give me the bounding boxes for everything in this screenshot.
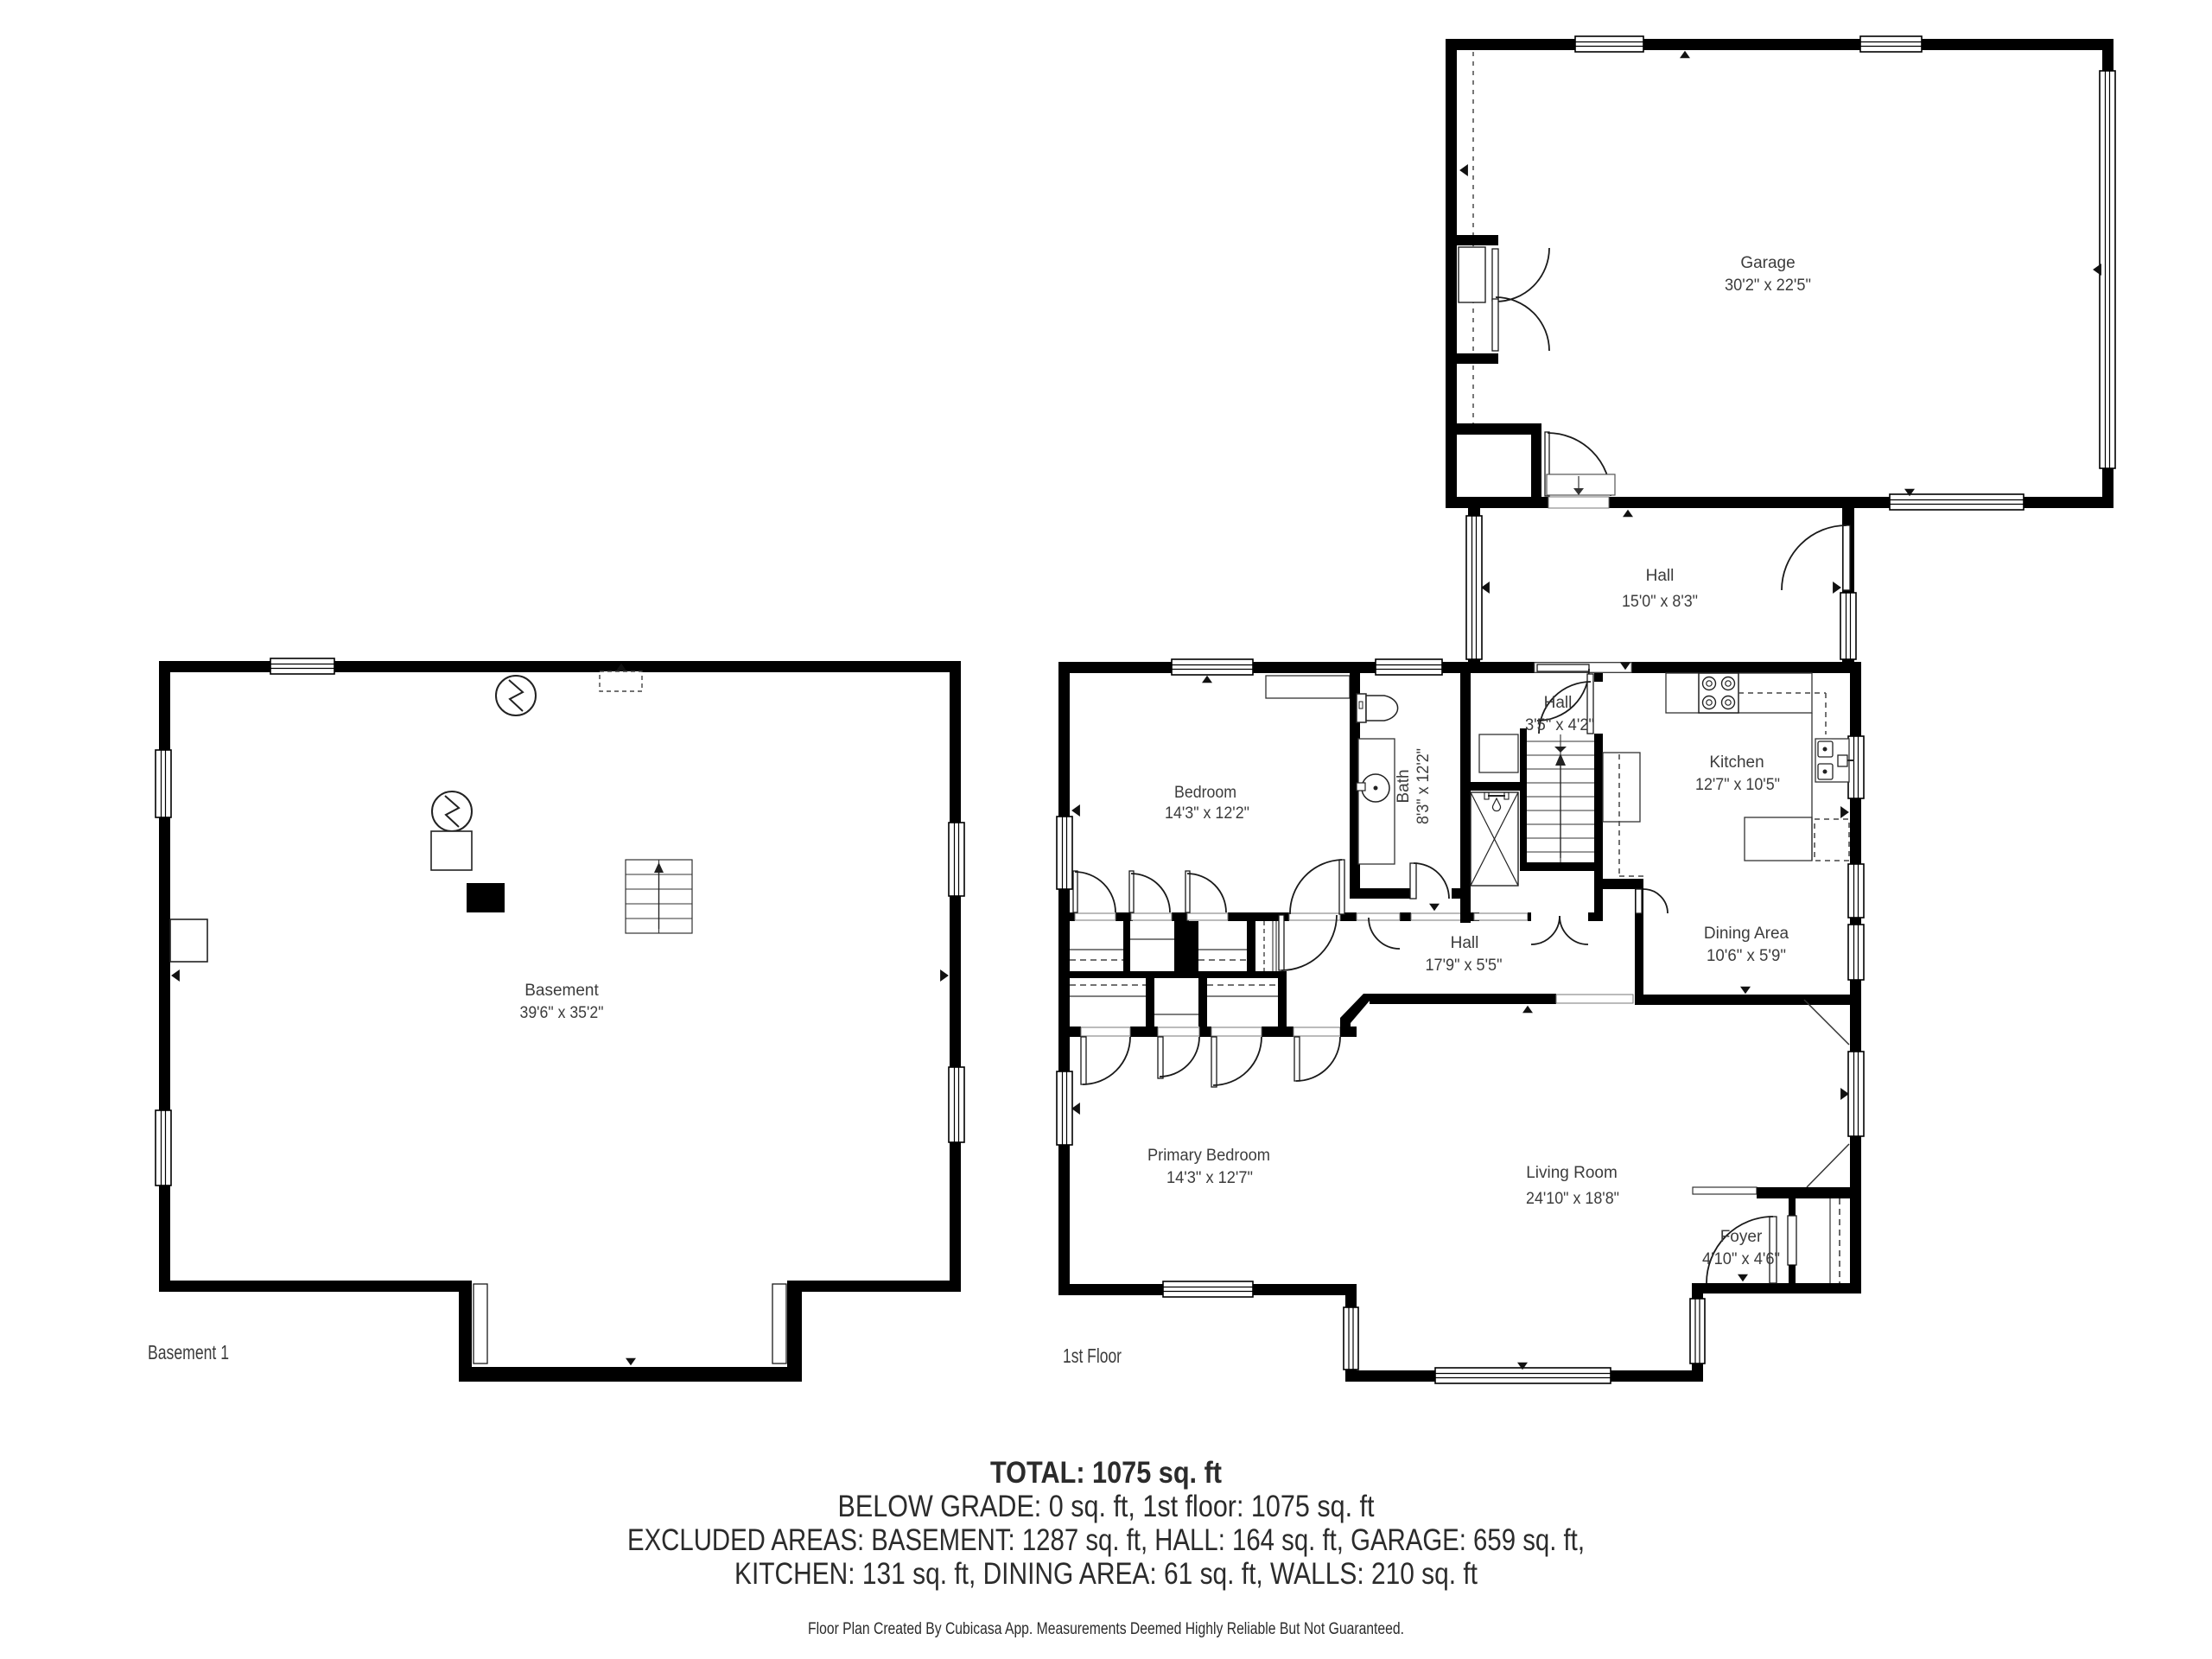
svg-text:EXCLUDED AREAS: BASEMENT: 1287: EXCLUDED AREAS: BASEMENT: 1287 sq. ft, H… bbox=[627, 1523, 1585, 1557]
svg-text:Bedroom: Bedroom bbox=[1174, 784, 1236, 802]
svg-text:Foyer: Foyer bbox=[1720, 1228, 1763, 1246]
svg-text:3'5" x 4'2": 3'5" x 4'2" bbox=[1525, 716, 1594, 734]
svg-text:14'3" x 12'2": 14'3" x 12'2" bbox=[1165, 804, 1249, 823]
svg-text:10'6" x 5'9": 10'6" x 5'9" bbox=[1707, 947, 1786, 965]
svg-text:Floor Plan Created By Cubicasa: Floor Plan Created By Cubicasa App. Meas… bbox=[808, 1620, 1404, 1638]
svg-text:KITCHEN: 131 sq. ft, DINING AR: KITCHEN: 131 sq. ft, DINING AREA: 61 sq.… bbox=[734, 1557, 1478, 1591]
svg-text:17'9" x 5'5": 17'9" x 5'5" bbox=[1426, 957, 1503, 975]
svg-text:Basement: Basement bbox=[524, 982, 599, 1000]
svg-text:1st Floor: 1st Floor bbox=[1063, 1344, 1122, 1367]
svg-text:15'0" x 8'3": 15'0" x 8'3" bbox=[1622, 593, 1698, 611]
svg-text:Basement 1: Basement 1 bbox=[148, 1341, 229, 1363]
svg-text:BELOW GRADE: 0 sq. ft, 1st flo: BELOW GRADE: 0 sq. ft, 1st floor: 1075 s… bbox=[838, 1490, 1375, 1523]
svg-text:30'2" x 22'5": 30'2" x 22'5" bbox=[1725, 276, 1811, 295]
svg-text:Hall: Hall bbox=[1646, 567, 1675, 585]
svg-text:Hall: Hall bbox=[1451, 934, 1479, 952]
svg-text:Kitchen: Kitchen bbox=[1709, 753, 1764, 772]
svg-text:24'10" x 18'8": 24'10" x 18'8" bbox=[1526, 1190, 1619, 1208]
svg-text:4'10" x 4'6": 4'10" x 4'6" bbox=[1702, 1250, 1780, 1268]
svg-text:12'7" x 10'5": 12'7" x 10'5" bbox=[1695, 776, 1780, 794]
svg-text:Living Room: Living Room bbox=[1526, 1164, 1618, 1182]
svg-text:8'3" x 12'2": 8'3" x 12'2" bbox=[1414, 748, 1433, 824]
svg-text:TOTAL: 1075 sq. ft: TOTAL: 1075 sq. ft bbox=[990, 1456, 1222, 1490]
svg-text:39'6" x 35'2": 39'6" x 35'2" bbox=[520, 1004, 604, 1022]
svg-text:Dining Area: Dining Area bbox=[1704, 925, 1789, 943]
svg-text:14'3" x 12'7": 14'3" x 12'7" bbox=[1166, 1169, 1253, 1187]
svg-text:Bath: Bath bbox=[1395, 769, 1413, 803]
svg-text:Primary Bedroom: Primary Bedroom bbox=[1147, 1147, 1270, 1165]
svg-text:Garage: Garage bbox=[1740, 254, 1795, 272]
svg-text:Hall: Hall bbox=[1544, 694, 1573, 712]
